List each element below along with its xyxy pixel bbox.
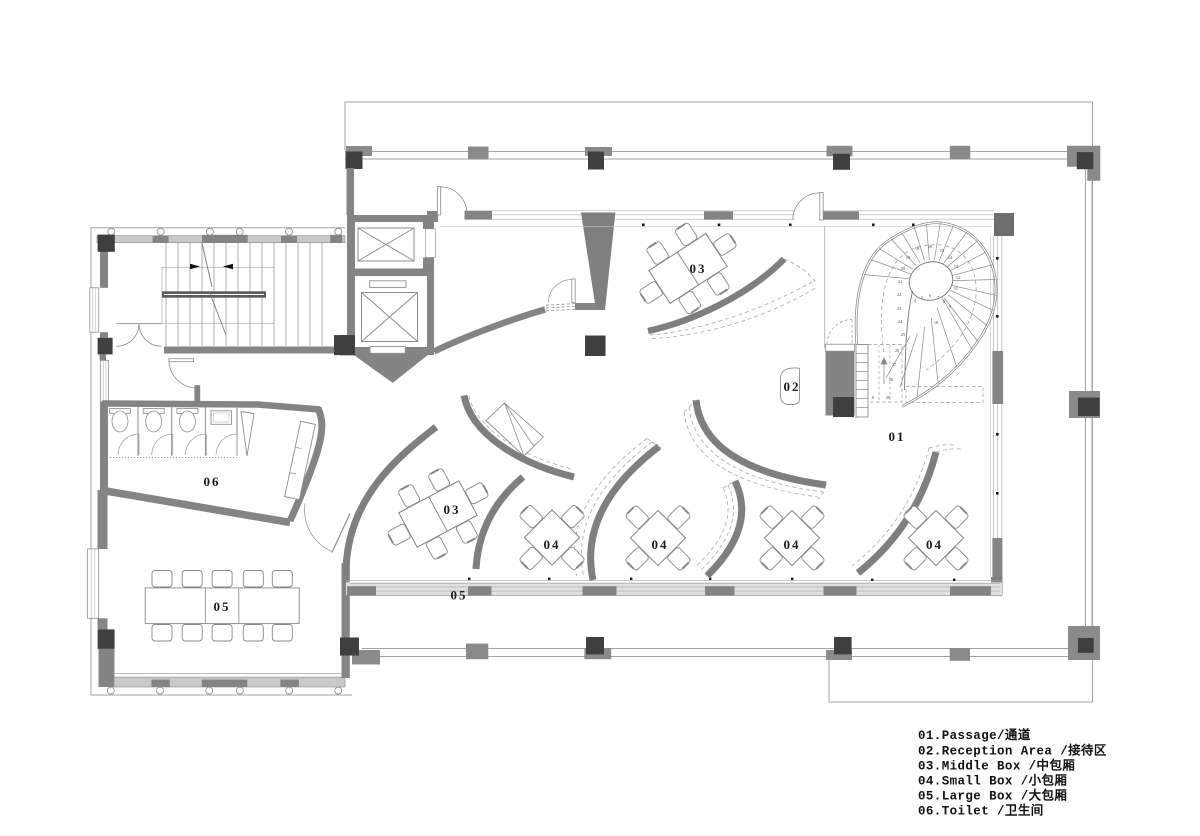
- svg-text:04: 04: [544, 537, 561, 552]
- svg-text:03: 03: [690, 261, 707, 276]
- svg-text:01.Passage/通道: 01.Passage/通道: [918, 727, 1031, 743]
- svg-text:06: 06: [204, 474, 221, 489]
- svg-text:15: 15: [940, 248, 944, 253]
- svg-text:03: 03: [444, 502, 461, 517]
- svg-text:22: 22: [897, 292, 901, 297]
- svg-text:25: 25: [901, 332, 905, 337]
- svg-text:28: 28: [889, 377, 893, 382]
- svg-text:21: 21: [898, 279, 902, 284]
- svg-text:05: 05: [214, 599, 231, 614]
- svg-text:9: 9: [872, 395, 874, 400]
- svg-text:8: 8: [943, 299, 945, 304]
- svg-text:20: 20: [901, 266, 905, 271]
- svg-text:06.Toilet /卫生间: 06.Toilet /卫生间: [918, 803, 1044, 819]
- svg-text:23: 23: [897, 306, 901, 311]
- svg-text:13: 13: [954, 264, 958, 269]
- svg-text:02.Reception Area /接待区: 02.Reception Area /接待区: [918, 743, 1107, 759]
- svg-text:03.Middle Box /中包厢: 03.Middle Box /中包厢: [918, 758, 1075, 774]
- svg-text:02: 02: [784, 379, 801, 394]
- svg-text:29: 29: [886, 395, 890, 400]
- svg-text:04.Small Box /小包厢: 04.Small Box /小包厢: [918, 773, 1067, 789]
- svg-text:12: 12: [956, 275, 960, 280]
- svg-text:19: 19: [906, 255, 910, 260]
- svg-text:04: 04: [652, 537, 669, 552]
- svg-text:9: 9: [949, 304, 951, 309]
- svg-text:10: 10: [934, 320, 938, 325]
- svg-text:01: 01: [889, 429, 906, 444]
- svg-text:18: 18: [915, 246, 919, 251]
- svg-text:05.Large Box /大包厢: 05.Large Box /大包厢: [918, 788, 1067, 804]
- svg-text:05: 05: [451, 588, 468, 603]
- svg-text:11: 11: [954, 286, 958, 291]
- svg-text:5: 5: [921, 295, 923, 300]
- svg-text:04: 04: [926, 537, 943, 552]
- svg-text:04: 04: [784, 537, 801, 552]
